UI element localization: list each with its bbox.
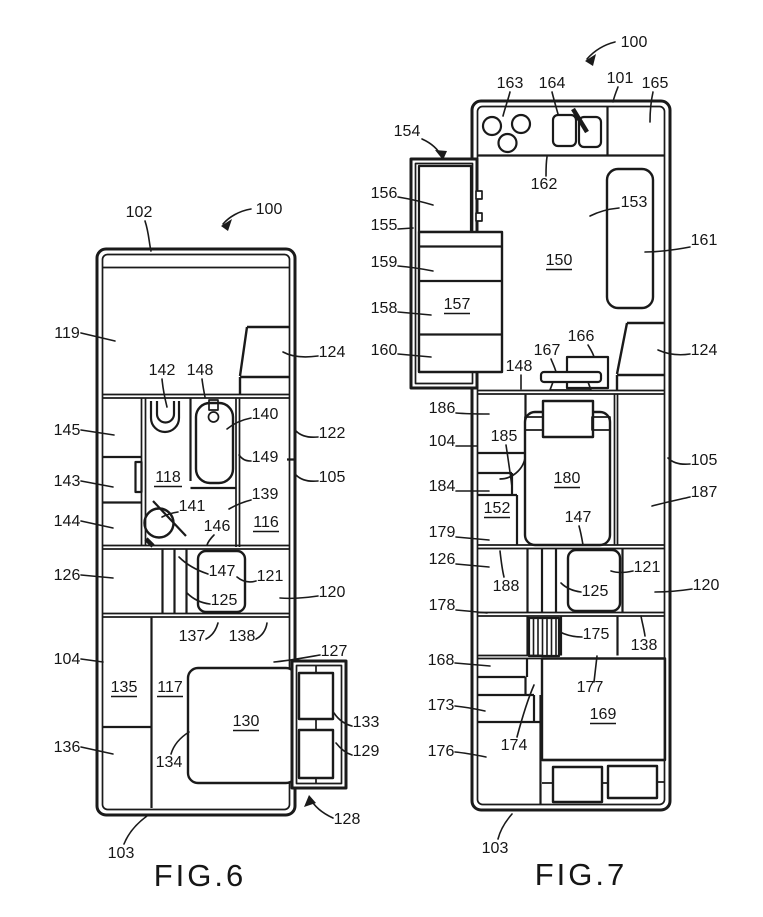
- fig7-label-184: 184: [429, 478, 456, 495]
- fig6-label-126: 126: [54, 567, 81, 584]
- fig7-label-186: 186: [429, 400, 456, 417]
- fig7-label-101: 101: [607, 70, 634, 87]
- fig7-label-100: 100: [621, 34, 648, 51]
- fig7-label-103: 103: [482, 840, 509, 857]
- fig7-label-157: 157: [444, 296, 471, 313]
- patent-sheet: 102 100 119 142 148 124 145 140 122 143 …: [0, 0, 763, 917]
- fig7-label-155: 155: [371, 217, 398, 234]
- fig6-slideout: [292, 661, 346, 788]
- fig7-label-124: 124: [691, 342, 718, 359]
- fig6-label-119: 119: [54, 325, 80, 342]
- fig6-label-120: 120: [319, 584, 346, 601]
- fig6-label-133: 133: [353, 714, 380, 731]
- fig6-label-105: 105: [319, 469, 346, 486]
- fig7-label-169: 169: [590, 706, 617, 723]
- fig7-label-105: 105: [691, 452, 718, 469]
- fig6-label-135: 135: [111, 679, 138, 696]
- fig7-sofa: [607, 169, 653, 308]
- fig7-label-154: 154: [394, 123, 421, 140]
- fig7-label-185: 185: [491, 428, 518, 445]
- fig7-label-173: 173: [428, 697, 455, 714]
- fig6-label-140: 140: [252, 406, 279, 423]
- fig6-label-124: 124: [319, 344, 346, 361]
- fig6-label-143: 143: [54, 473, 81, 490]
- fig7-label-175: 175: [583, 626, 610, 643]
- fig6-label-125: 125: [211, 592, 238, 609]
- fig7-label-168: 168: [428, 652, 455, 669]
- fig7-label-177: 177: [577, 679, 604, 696]
- fig7-label-161: 161: [691, 232, 718, 249]
- fig7-label-179: 179: [429, 524, 456, 541]
- fig6-label-117: 117: [157, 679, 183, 696]
- fig7-label-159: 159: [371, 254, 398, 271]
- fig7-label-160: 160: [371, 342, 398, 359]
- fig6-label-137: 137: [179, 628, 206, 645]
- fig6-label-146: 146: [204, 518, 231, 535]
- fig6-label-128: 128: [334, 811, 361, 828]
- fig7-label-147: 147: [565, 509, 592, 526]
- fig7-label-150: 150: [546, 252, 573, 269]
- fig6-label-116: 116: [253, 514, 279, 531]
- fig6-label-100: 100: [256, 201, 283, 218]
- fig6-label-130: 130: [233, 713, 260, 730]
- fig6-label-136: 136: [54, 739, 81, 756]
- fig7-bench-seat: [617, 323, 665, 390]
- fig7-label-152: 152: [484, 500, 511, 517]
- fig7-ladder: [529, 618, 559, 656]
- fig6-label-138: 138: [229, 628, 256, 645]
- fig7-label-174: 174: [501, 737, 528, 754]
- fig7-label-187: 187: [691, 484, 718, 501]
- fig7-kitchen-sink: [553, 109, 601, 147]
- fig6-label-147: 147: [209, 563, 236, 580]
- fig7-label-126: 126: [429, 551, 456, 568]
- fig7-door-arc: [500, 453, 526, 479]
- fig7-label-176: 176: [428, 743, 455, 760]
- fig7-label-163: 163: [497, 75, 524, 92]
- fig7-stove-burners: [483, 115, 530, 152]
- fig6-caption: FIG.6: [154, 858, 247, 893]
- fig6-label-102: 102: [126, 204, 153, 221]
- fig7-label-148: 148: [506, 358, 533, 375]
- fig7-label-188: 188: [493, 578, 520, 595]
- fig7-caption: FIG.7: [535, 857, 628, 892]
- fig7-footboard-storage: [542, 766, 665, 802]
- fig7-label-125: 125: [582, 583, 609, 600]
- fig6-bench-seat: [240, 327, 290, 394]
- fig7-label-153: 153: [621, 194, 648, 211]
- fig6-label-129: 129: [353, 743, 380, 760]
- figure6: 102 100 119 142 148 124 145 140 122 143 …: [54, 201, 380, 893]
- fig6-door-jamb: [136, 462, 142, 492]
- fig6-toilet: [151, 401, 179, 432]
- fig7-label-166: 166: [568, 328, 595, 345]
- fig6-label-122: 122: [319, 425, 346, 442]
- fig6-label-148: 148: [187, 362, 214, 379]
- fig7-label-180: 180: [554, 470, 581, 487]
- fig6-label-144: 144: [54, 513, 81, 530]
- fig6-label-134: 134: [156, 754, 183, 771]
- fig7-label-104: 104: [429, 433, 456, 450]
- fig7-label-138: 138: [631, 637, 658, 654]
- fig7-slideout: [411, 159, 502, 388]
- fig6-label-145: 145: [54, 422, 81, 439]
- fig6-label-127: 127: [321, 643, 348, 660]
- fig6-bathtub: [196, 400, 233, 483]
- fig7-label-120: 120: [693, 577, 720, 594]
- fig7-label-121: 121: [634, 559, 661, 576]
- fig7-label-156: 156: [371, 185, 398, 202]
- fig7-label-167: 167: [534, 342, 561, 359]
- fig6-label-103: 103: [108, 845, 135, 862]
- fig6-label-104: 104: [54, 651, 81, 668]
- fig7-label-164: 164: [539, 75, 566, 92]
- fig7-label-165: 165: [642, 75, 669, 92]
- figure7: 100 163 164 101 165 154 156 155 159 158 …: [371, 34, 720, 892]
- fig6-label-121: 121: [257, 568, 284, 585]
- fig6-label-142: 142: [149, 362, 176, 379]
- fig7-label-158: 158: [371, 300, 398, 317]
- fig6-label-149: 149: [252, 449, 279, 466]
- patent-drawing: 102 100 119 142 148 124 145 140 122 143 …: [0, 0, 763, 917]
- fig6-label-139: 139: [252, 486, 279, 503]
- fig6-label-141: 141: [179, 498, 206, 515]
- fig7-label-178: 178: [429, 597, 456, 614]
- fig7-wardrobe-121: [568, 550, 620, 611]
- fig7-label-162: 162: [531, 176, 558, 193]
- fig7-dinette-table: [541, 357, 608, 390]
- fig6-label-118: 118: [155, 469, 181, 486]
